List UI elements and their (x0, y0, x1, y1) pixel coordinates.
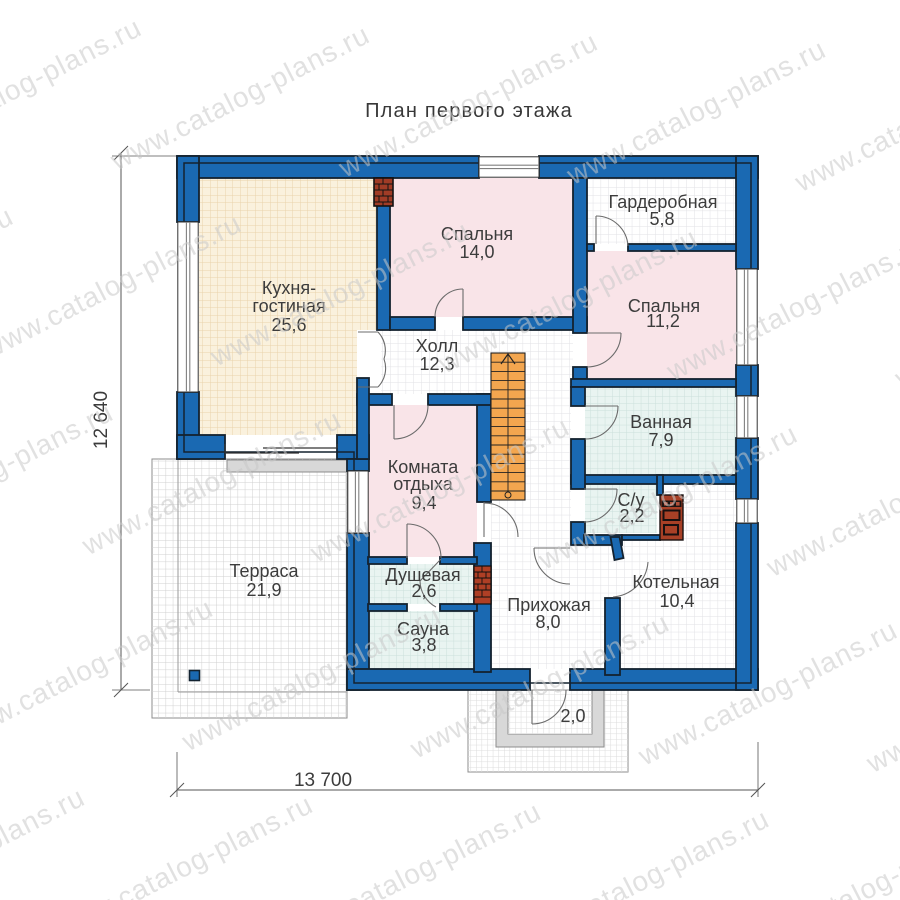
svg-text:8,0: 8,0 (535, 612, 560, 632)
svg-text:5,8: 5,8 (649, 209, 674, 229)
svg-text:11,2: 11,2 (646, 311, 680, 331)
svg-text:Ванная: Ванная (630, 412, 692, 432)
svg-text:10,4: 10,4 (659, 591, 694, 611)
svg-text:21,9: 21,9 (246, 580, 281, 600)
svg-text:Терраса: Терраса (229, 561, 299, 581)
svg-text:2,6: 2,6 (411, 581, 436, 601)
svg-text:7,9: 7,9 (648, 430, 673, 450)
svg-text:Котельная: Котельная (632, 572, 719, 592)
svg-text:2,0: 2,0 (560, 706, 585, 726)
